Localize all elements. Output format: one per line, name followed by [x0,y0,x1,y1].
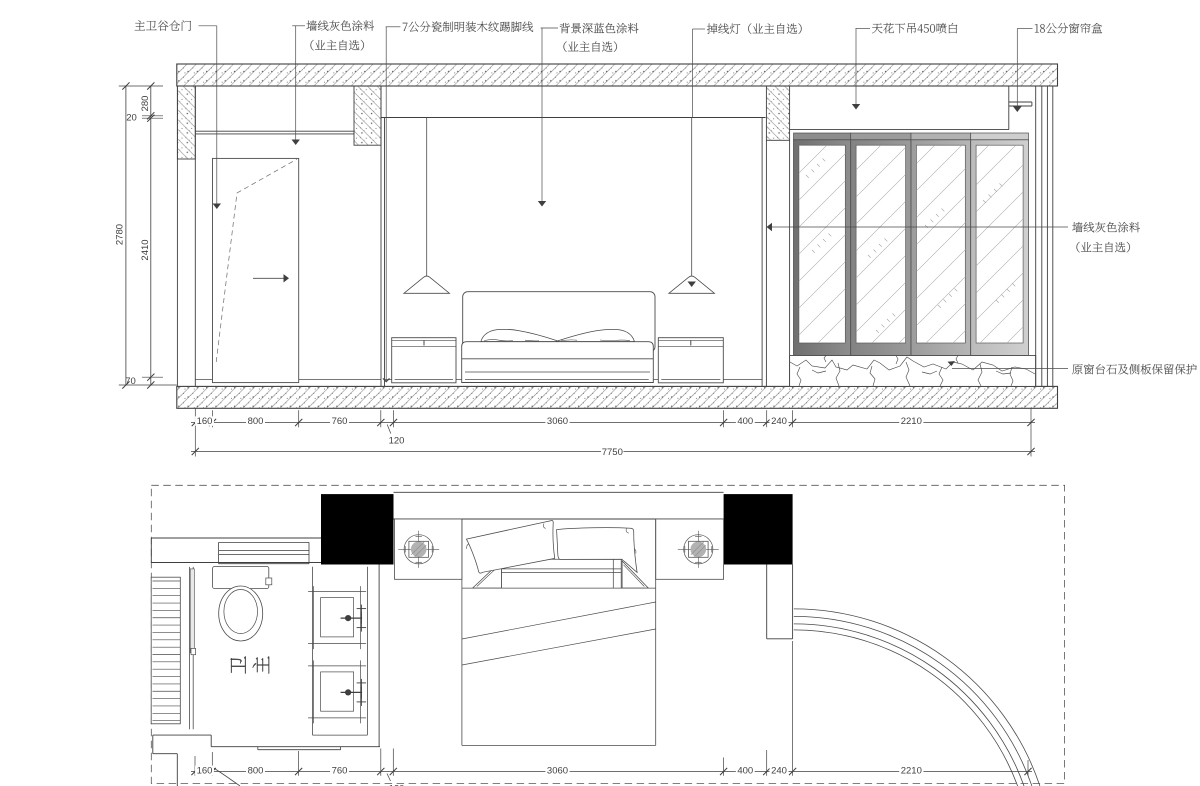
svg-text:760: 760 [332,416,348,427]
svg-text:400: 400 [737,765,753,776]
svg-text:800: 800 [248,416,264,427]
svg-text:2410: 2410 [140,239,151,260]
svg-text:760: 760 [332,765,348,776]
svg-text:280: 280 [140,96,151,112]
svg-text:70: 70 [125,376,136,387]
svg-text:160: 160 [197,416,213,427]
svg-text:400: 400 [737,416,753,427]
svg-text:2210: 2210 [901,765,922,776]
svg-text:240: 240 [771,765,787,776]
svg-text:20: 20 [126,113,137,124]
svg-text:160: 160 [197,765,213,776]
svg-text:3060: 3060 [547,416,568,427]
svg-text:3060: 3060 [547,765,568,776]
svg-text:240: 240 [771,416,787,427]
svg-text:800: 800 [248,765,264,776]
svg-text:7750: 7750 [602,447,623,458]
svg-text:2780: 2780 [115,224,126,245]
svg-text:120: 120 [389,436,405,447]
svg-text:2210: 2210 [901,416,922,427]
